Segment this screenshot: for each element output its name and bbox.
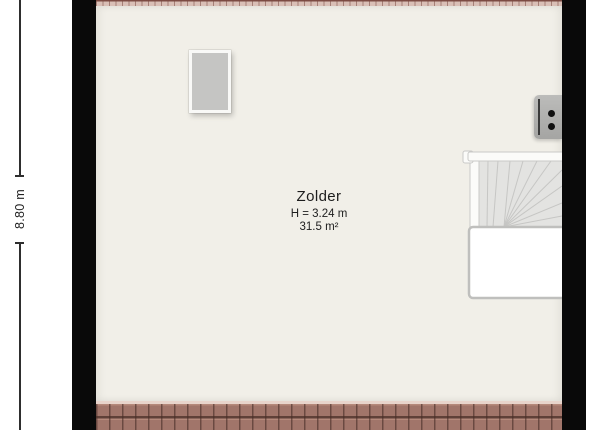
stair-handrail-bar — [468, 152, 562, 161]
dimension-label: 8.80 m — [13, 184, 27, 234]
room-ceiling-height: H = 3.24 m — [239, 208, 399, 221]
staircase-icon — [460, 148, 562, 304]
room-area: 31.5 m² — [239, 221, 399, 234]
room-label: Zolder H = 3.24 m 31.5 m² — [239, 188, 399, 234]
dimension-line-segment-top — [19, 0, 21, 176]
boiler-unit-icon — [534, 95, 562, 139]
room-name: Zolder — [239, 188, 399, 205]
boiler-dot — [548, 110, 555, 117]
stairwell-void — [469, 227, 562, 298]
stair-stringer — [470, 160, 479, 227]
roof-tiles-strip — [96, 401, 562, 430]
boiler-panel-line — [538, 99, 540, 135]
dimension-line-segment-bottom — [19, 243, 21, 430]
left-wall — [72, 0, 96, 430]
right-wall — [562, 0, 586, 430]
dimension-tick-bottom — [15, 242, 24, 244]
dimension-tick-top — [15, 175, 24, 177]
floorplan-canvas: 8.80 m Zolder H = 3.24 m 31.5 m² — [0, 0, 608, 430]
skylight-window-icon — [189, 50, 231, 113]
boiler-dot — [548, 123, 555, 130]
